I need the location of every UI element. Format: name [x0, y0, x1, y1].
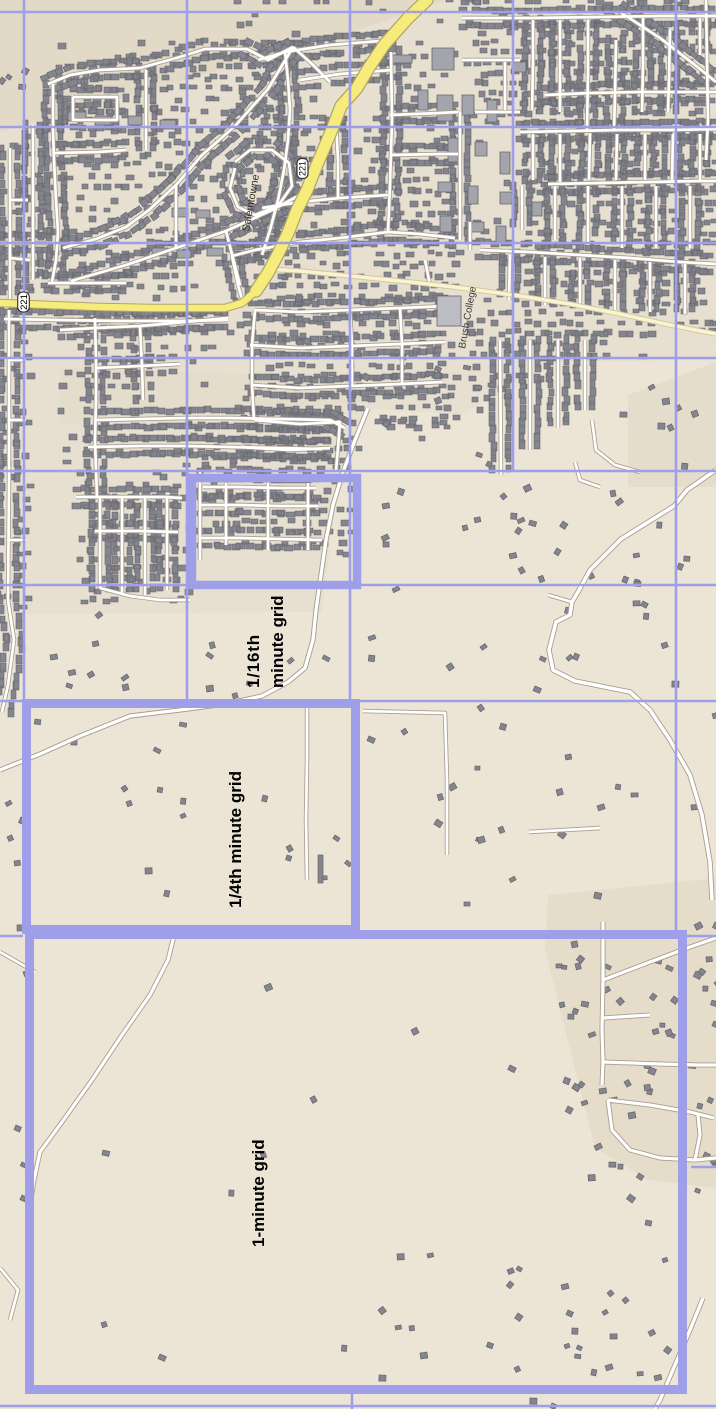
svg-text:1/16th: 1/16th: [244, 634, 263, 688]
svg-text:1/4th minute grid: 1/4th minute grid: [226, 771, 245, 908]
svg-text:1-minute grid: 1-minute grid: [249, 1139, 268, 1247]
svg-text:221: 221: [19, 294, 30, 310]
svg-text:221: 221: [298, 161, 308, 176]
svg-text:minute grid: minute grid: [268, 595, 287, 688]
